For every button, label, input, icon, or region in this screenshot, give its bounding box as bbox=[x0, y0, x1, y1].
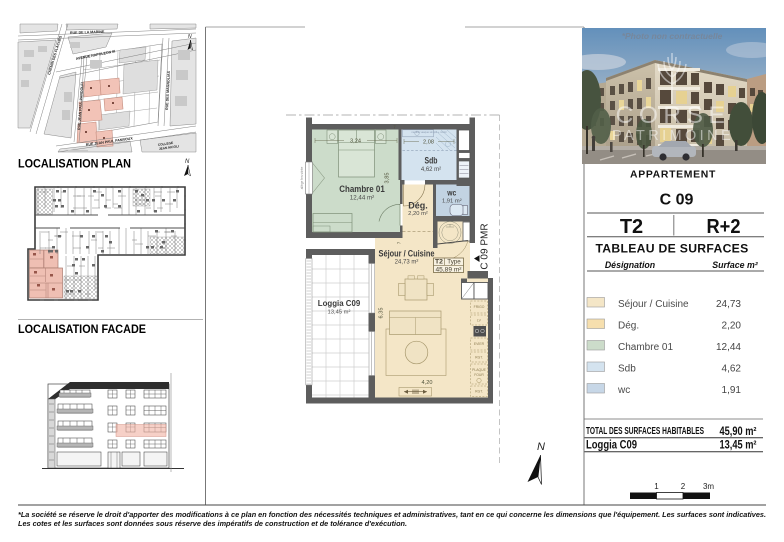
svg-text:Sdb: Sdb bbox=[425, 156, 438, 166]
svg-text:Loggia C09: Loggia C09 bbox=[586, 438, 637, 452]
svg-text:Surface m²: Surface m² bbox=[712, 260, 759, 270]
svg-text:TABLEAU DE SURFACES: TABLEAU DE SURFACES bbox=[595, 242, 748, 256]
svg-text:*Photo non contractuelle: *Photo non contractuelle bbox=[622, 31, 723, 41]
svg-text:24,73 m²: 24,73 m² bbox=[395, 260, 419, 266]
svg-text:24,73: 24,73 bbox=[716, 299, 741, 310]
svg-text:Dég.: Dég. bbox=[618, 321, 639, 332]
svg-text:allège fen vitrée: allège fen vitrée bbox=[300, 167, 304, 190]
svg-text:Chambre 01: Chambre 01 bbox=[339, 184, 385, 195]
svg-text:wc: wc bbox=[617, 385, 630, 396]
svg-text:2,08: 2,08 bbox=[423, 140, 434, 146]
svg-text:4,20: 4,20 bbox=[422, 380, 433, 386]
svg-text:1,91 m²: 1,91 m² bbox=[442, 199, 462, 205]
svg-text:N: N bbox=[185, 159, 190, 165]
svg-text:Les cotes et les surfaces sont: Les cotes et les surfaces sont données s… bbox=[18, 519, 407, 528]
svg-text:EVIER: EVIER bbox=[474, 342, 485, 346]
svg-text:Dég.: Dég. bbox=[408, 201, 428, 211]
svg-text:LOCALISATION FACADE: LOCALISATION FACADE bbox=[18, 322, 146, 336]
svg-text:12,44 m²: 12,44 m² bbox=[350, 195, 374, 202]
svg-text:Loggia C09: Loggia C09 bbox=[318, 298, 361, 308]
svg-text:TOTAL DES SURFACES HABITABLES: TOTAL DES SURFACES HABITABLES bbox=[586, 426, 704, 437]
svg-text:FRIGO: FRIGO bbox=[474, 305, 485, 309]
svg-text:*La société se réserve le droi: *La société se réserve le droit d'apport… bbox=[18, 510, 766, 519]
svg-text:N: N bbox=[537, 441, 545, 453]
svg-text:13,45 m²: 13,45 m² bbox=[328, 310, 351, 316]
svg-text:CORSE: CORSE bbox=[616, 102, 731, 129]
svg-text:13,45 m²: 13,45 m² bbox=[720, 440, 757, 452]
svg-text:Désignation: Désignation bbox=[605, 260, 655, 270]
svg-text:meuble vasque simple + miroir: meuble vasque simple + miroir bbox=[411, 130, 446, 134]
svg-text:12,44: 12,44 bbox=[716, 342, 741, 353]
svg-text:PLAQUE: PLAQUE bbox=[472, 368, 486, 372]
svg-text:T2: T2 bbox=[435, 259, 443, 266]
svg-text:Séjour / Cuisine: Séjour / Cuisine bbox=[618, 299, 689, 310]
svg-text:45,89 m²: 45,89 m² bbox=[435, 266, 462, 273]
svg-text:T2: T2 bbox=[620, 216, 643, 238]
svg-text:PATRIMOINE: PATRIMOINE bbox=[612, 128, 734, 144]
svg-text:3,85: 3,85 bbox=[385, 173, 391, 184]
svg-text:C 09: C 09 bbox=[660, 192, 694, 209]
svg-text:2,20: 2,20 bbox=[722, 321, 742, 332]
svg-text:LOCALISATION PLAN: LOCALISATION PLAN bbox=[18, 157, 131, 171]
svg-text:4,62 m²: 4,62 m² bbox=[421, 167, 441, 173]
svg-text:RGT.: RGT. bbox=[475, 390, 483, 394]
svg-text:2,20 m²: 2,20 m² bbox=[408, 211, 428, 217]
svg-text:4,62: 4,62 bbox=[722, 364, 742, 375]
svg-text:C 09 PMR: C 09 PMR bbox=[480, 223, 491, 269]
svg-text:APPARTEMENT: APPARTEMENT bbox=[630, 170, 716, 181]
svg-text:Type: Type bbox=[447, 259, 461, 266]
svg-text:3,24: 3,24 bbox=[350, 139, 361, 145]
svg-text:1,91: 1,91 bbox=[722, 385, 742, 396]
svg-text:Sdb: Sdb bbox=[618, 364, 636, 375]
svg-text:2: 2 bbox=[681, 482, 686, 491]
svg-text:FOUR: FOUR bbox=[474, 373, 484, 377]
svg-text:Séjour / Cuisine: Séjour / Cuisine bbox=[379, 249, 435, 259]
svg-text:RGT.: RGT. bbox=[475, 356, 483, 360]
svg-text:Chambre 01: Chambre 01 bbox=[618, 342, 673, 353]
svg-text:1: 1 bbox=[654, 482, 659, 491]
svg-text:45,90 m²: 45,90 m² bbox=[720, 426, 757, 438]
svg-text:6,35: 6,35 bbox=[379, 308, 385, 319]
svg-text:N: N bbox=[188, 34, 192, 40]
svg-text:wc: wc bbox=[447, 188, 457, 198]
svg-text:3m: 3m bbox=[703, 482, 714, 491]
svg-text:R+2: R+2 bbox=[707, 216, 741, 238]
